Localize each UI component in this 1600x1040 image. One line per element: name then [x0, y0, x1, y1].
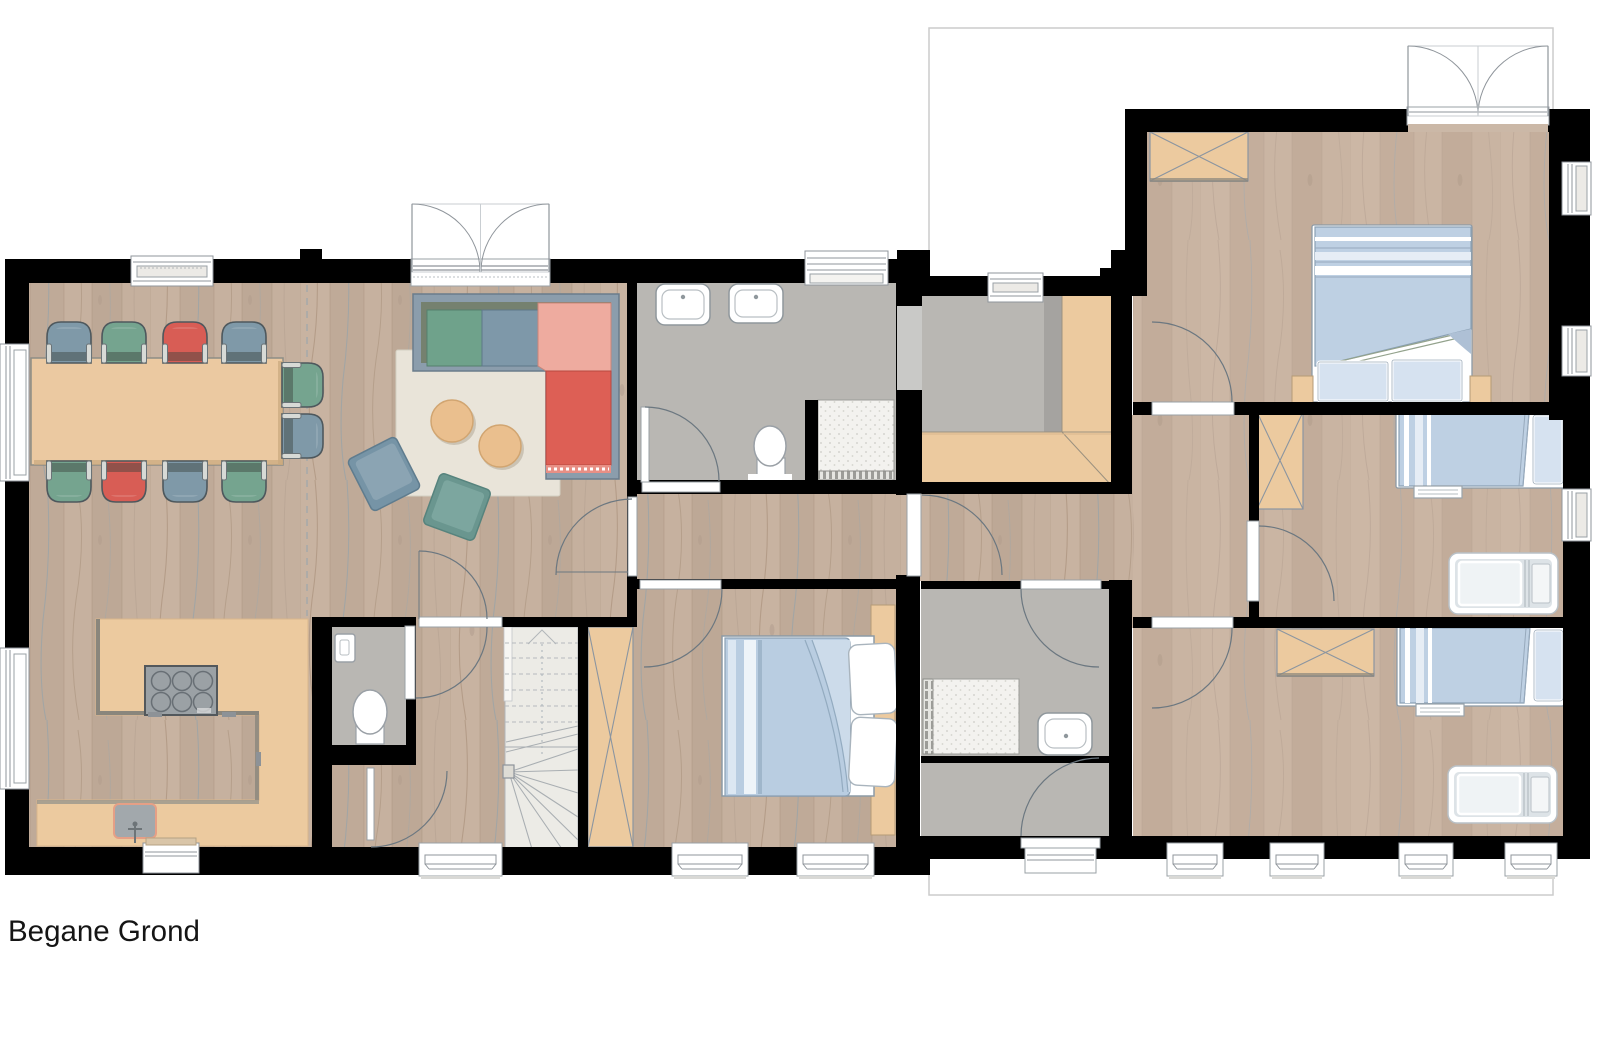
- svg-text:Begane Grond: Begane Grond: [8, 915, 200, 948]
